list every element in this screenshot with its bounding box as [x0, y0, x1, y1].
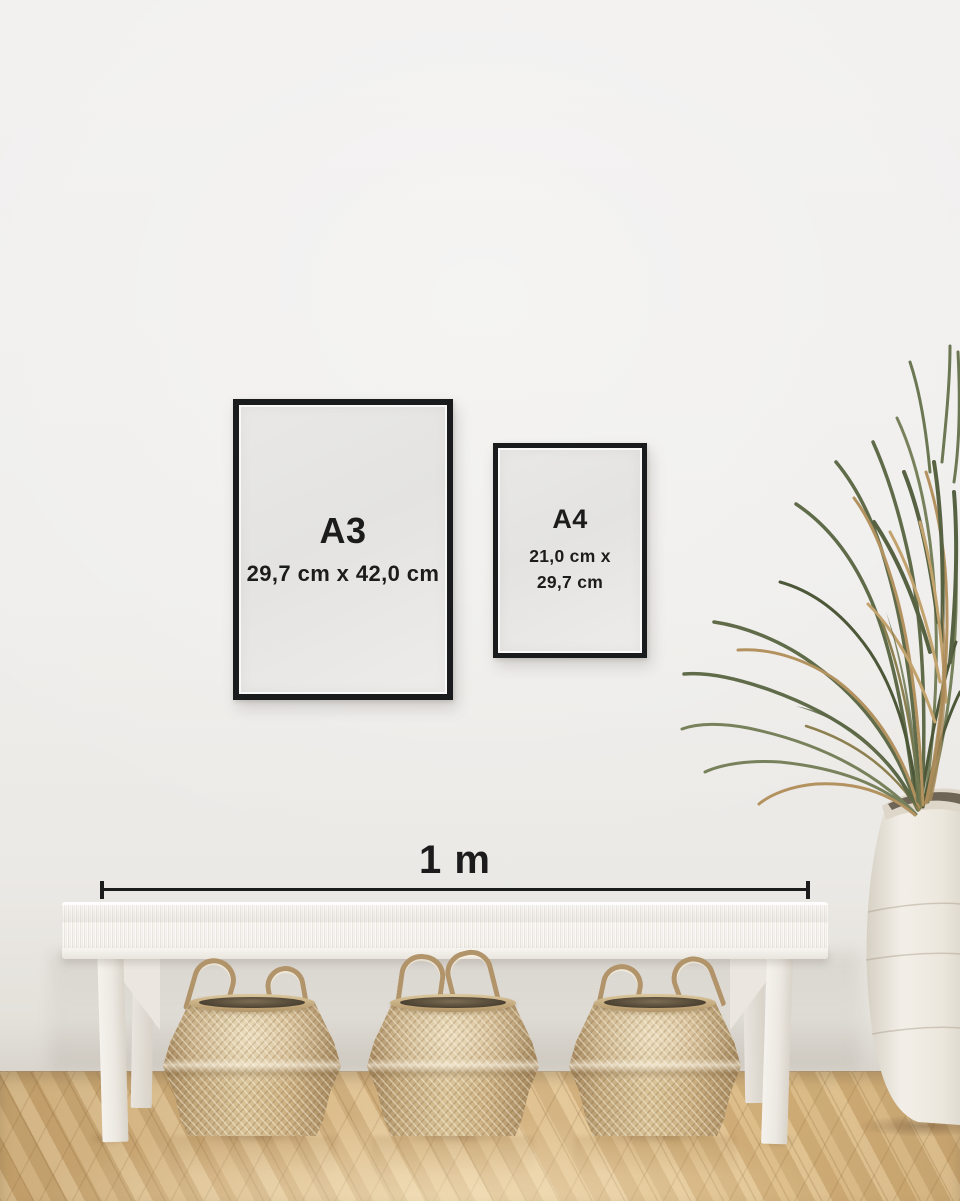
palm-fronds	[682, 346, 960, 815]
scale-bar-line	[102, 888, 808, 891]
basket-rim	[390, 994, 516, 1012]
frame-a3: A3 29,7 cm x 42,0 cm	[233, 399, 453, 700]
frame-a4-label: A4	[552, 506, 587, 533]
scale-bar-label: 1 m	[102, 838, 808, 883]
scale-bar-right-tick	[806, 881, 810, 899]
scale-bar-left-tick	[100, 881, 104, 899]
bench-front-left-leg	[97, 958, 128, 1143]
basket-body	[367, 1002, 539, 1136]
basket-body	[163, 1002, 341, 1136]
frame-a4-dimensions-line2: 29,7 cm	[529, 569, 611, 595]
frame-a3-dimensions: 29,7 cm x 42,0 cm	[247, 561, 440, 587]
basket-rim	[594, 994, 716, 1012]
basket-opening	[604, 997, 706, 1008]
bench-front-right-leg	[761, 958, 793, 1145]
vase-body	[867, 794, 960, 1125]
frame-a4: A4 21,0 cm x 29,7 cm	[493, 443, 647, 658]
frame-a3-label: A3	[319, 513, 366, 549]
bench-rail	[62, 948, 828, 959]
frame-a4-dimensions-line1: 21,0 cm x	[529, 543, 611, 569]
basket-rim	[189, 994, 315, 1012]
bench-woven-seat	[62, 902, 828, 948]
basket-opening	[400, 997, 506, 1008]
basket-opening	[199, 997, 305, 1008]
basket-body	[569, 1002, 741, 1136]
frame-a4-dimensions: 21,0 cm x 29,7 cm	[529, 543, 611, 596]
